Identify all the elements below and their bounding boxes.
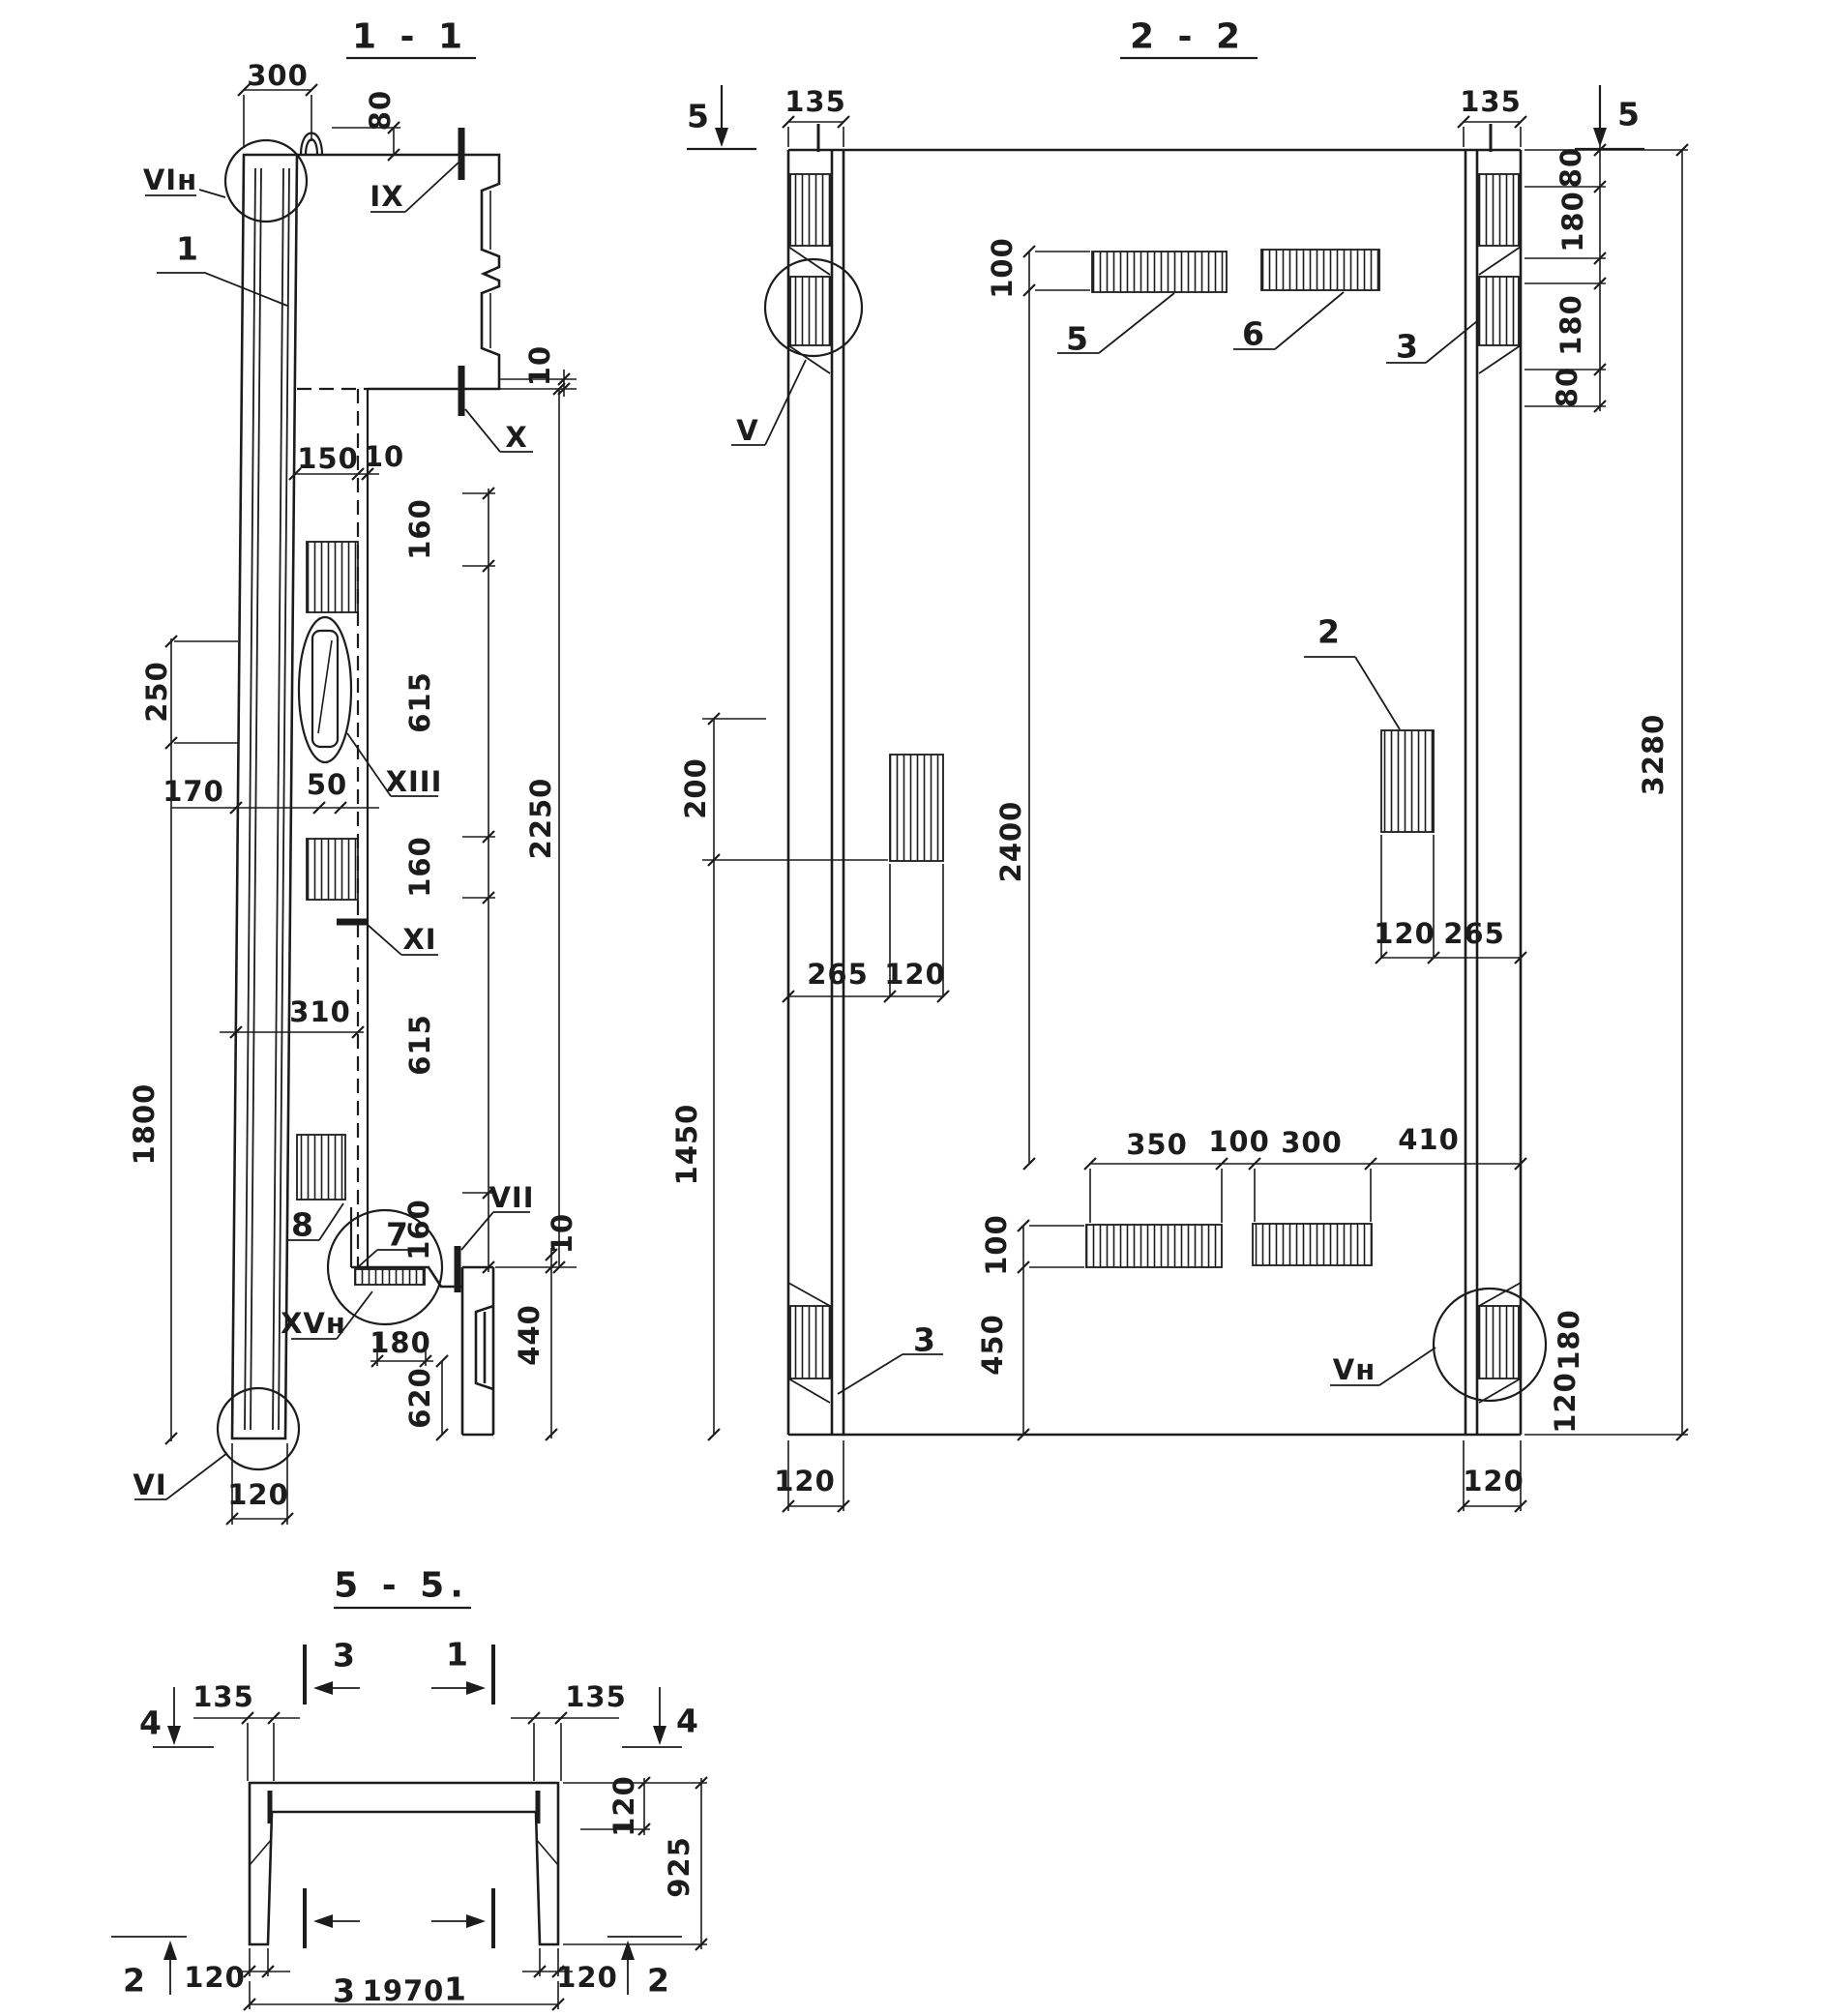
wall-reinforcement-bars xyxy=(245,168,289,1430)
s22-dim-80-a: 80 xyxy=(1554,147,1587,188)
s22-dim-80-b: 80 xyxy=(1551,367,1583,407)
s11-mark-xv-n: XVн xyxy=(281,1307,346,1340)
s11-dim-2250: 2250 xyxy=(524,778,557,860)
dimension-ticks-5-5 xyxy=(242,1712,707,2010)
plate-mid-left xyxy=(890,755,943,861)
s22-dim-350: 350 xyxy=(1126,1128,1188,1161)
s11-mark-xiii: XIII xyxy=(386,765,443,798)
s55-cut-4-right: 4 xyxy=(676,1703,699,1740)
s55-cut-3-bot: 3 xyxy=(333,1972,356,2010)
left-column-key-top-2 xyxy=(790,277,830,345)
s11-dim-10-bot: 10 xyxy=(546,1213,578,1254)
plate-top-left xyxy=(1092,252,1227,292)
s55-cut-4-left: 4 xyxy=(139,1705,163,1742)
s55-cut-1-bot: 1 xyxy=(444,1971,467,2008)
s11-dim-1800: 1800 xyxy=(128,1083,161,1166)
cut-marker-ticks xyxy=(305,1645,493,1948)
s22-dim-300: 300 xyxy=(1281,1126,1343,1159)
right-column-key-bottom xyxy=(1479,1306,1519,1379)
s11-dim-50: 50 xyxy=(307,768,347,801)
s11-dim-160-b: 160 xyxy=(403,836,436,898)
s22-dim-135-right: 135 xyxy=(1460,85,1522,118)
s11-dim-170: 170 xyxy=(163,775,224,808)
rebar-stubs xyxy=(818,124,1491,152)
rib-edge-line xyxy=(351,389,368,1267)
s22-dim-265-left: 265 xyxy=(807,958,869,991)
plate-mid-right xyxy=(1381,730,1434,832)
channel-section-outline xyxy=(250,1783,558,1944)
s22-dim-100-top: 100 xyxy=(986,237,1019,299)
s55-cut-1-top: 1 xyxy=(446,1636,469,1674)
s22-part-6: 6 xyxy=(1242,315,1265,353)
left-column-key-top-1 xyxy=(790,174,830,246)
s11-dim-10-mid: 10 xyxy=(364,440,404,473)
technical-drawing-canvas: 1 - 1 2 - 2 xyxy=(0,0,1835,2016)
s22-mark-v-n: Vн xyxy=(1333,1353,1376,1386)
s11-dim-160-a: 160 xyxy=(403,498,436,560)
s11-dim-180: 180 xyxy=(370,1326,431,1359)
s11-mark-xi: XI xyxy=(402,923,436,956)
plate-bottom-right xyxy=(1253,1224,1372,1265)
s22-cut-5-left: 5 xyxy=(687,98,710,135)
s22-mark-v: V xyxy=(736,414,758,447)
s22-dim-3280: 3280 xyxy=(1637,714,1670,796)
s11-dim-620: 620 xyxy=(403,1367,436,1429)
cut-marker-5-arrowheads xyxy=(715,128,1607,147)
s55-dim-120-bot-right: 120 xyxy=(556,1961,618,1994)
s22-dim-1450: 1450 xyxy=(670,1104,703,1186)
s22-dim-120-mid-left: 120 xyxy=(884,958,946,991)
s11-dim-300: 300 xyxy=(247,59,309,92)
s22-dim-120-bot-right: 120 xyxy=(1463,1465,1524,1497)
s22-part-3-bot: 3 xyxy=(913,1321,936,1359)
s55-cut-3-top: 3 xyxy=(333,1637,356,1675)
embedded-plate-middle xyxy=(307,839,358,900)
s55-dim-120-top: 120 xyxy=(607,1775,640,1837)
s11-dim-310: 310 xyxy=(289,995,351,1028)
s22-dim-180-c: 180 xyxy=(1553,1309,1585,1371)
s22-part-5: 5 xyxy=(1066,320,1089,358)
section-2-2: 2 - 2 xyxy=(687,17,1688,1513)
s22-part-3-top: 3 xyxy=(1396,328,1419,366)
cut-marker-arrowheads xyxy=(163,1681,666,1960)
s11-part-8: 8 xyxy=(291,1206,314,1244)
embedded-plate-bottom xyxy=(297,1135,345,1200)
plate-bottom-left xyxy=(1086,1225,1222,1267)
s22-dim-135-left: 135 xyxy=(784,85,846,118)
s11-dim-120: 120 xyxy=(227,1478,289,1511)
section-1-1: 1 - 1 xyxy=(134,17,577,1526)
s11-mark-x: X xyxy=(505,421,527,454)
left-column-key-bottom xyxy=(790,1306,830,1379)
s11-dim-440: 440 xyxy=(513,1304,546,1366)
embedded-plate-top xyxy=(307,542,358,612)
s55-dim-120-bot-left: 120 xyxy=(184,1961,246,1994)
s22-dim-180-a: 180 xyxy=(1556,191,1589,252)
s11-dim-150: 150 xyxy=(297,442,359,475)
dimension-ticks-2-2 xyxy=(708,116,1688,1512)
s11-mark-vi-n: VIн xyxy=(143,163,197,196)
weld-hatch-strip xyxy=(355,1269,425,1285)
s22-dim-180-b: 180 xyxy=(1554,294,1587,356)
s11-mark-ix: IX xyxy=(370,180,403,213)
s22-dim-120-r: 120 xyxy=(1549,1372,1582,1434)
s11-dim-80: 80 xyxy=(364,90,397,131)
section-2-2-title: 2 - 2 xyxy=(1130,17,1246,57)
s55-cut-2-left: 2 xyxy=(123,1962,146,2000)
leader-lines-1-1 xyxy=(134,163,533,1499)
section-cut-marks xyxy=(337,128,461,1292)
corner-key-marks xyxy=(270,1791,538,1823)
s11-part-1: 1 xyxy=(176,230,199,268)
s11-dim-615-a: 615 xyxy=(403,671,436,733)
s22-part-2: 2 xyxy=(1317,613,1341,651)
cut-marker-lines xyxy=(111,1687,682,1995)
s11-dim-250: 250 xyxy=(140,661,173,723)
s22-cut-5-right: 5 xyxy=(1617,96,1641,133)
s22-dim-120-bot-left: 120 xyxy=(774,1465,836,1497)
section-1-1-title: 1 - 1 xyxy=(352,17,468,57)
s11-mark-vi: VI xyxy=(133,1468,166,1501)
plate-top-right xyxy=(1261,250,1379,290)
s22-dim-120-mid-right: 120 xyxy=(1374,917,1435,950)
s22-dim-100-bot-v: 100 xyxy=(980,1214,1013,1276)
s11-part-7: 7 xyxy=(386,1216,409,1254)
s55-dim-1970: 1970 xyxy=(363,1974,445,2007)
s22-dim-450: 450 xyxy=(976,1314,1009,1376)
s55-dim-135-right: 135 xyxy=(565,1680,627,1713)
s22-dim-265-right: 265 xyxy=(1443,917,1505,950)
drawing-sheet: 1 - 1 2 - 2 xyxy=(0,0,1835,2016)
dimension-lines-2-2 xyxy=(702,122,1688,1511)
s22-dim-2400: 2400 xyxy=(994,801,1027,883)
section-5-5-title: 5 - 5. xyxy=(334,1566,469,1606)
s11-mark-vii: VII xyxy=(488,1181,534,1214)
s22-dim-410: 410 xyxy=(1398,1123,1460,1156)
s11-dim-10-top: 10 xyxy=(523,345,556,386)
leg-chamfer-lines xyxy=(250,1839,558,1865)
s55-dim-925: 925 xyxy=(663,1836,696,1898)
right-column-key-top-2 xyxy=(1479,277,1519,345)
s22-dim-100-bot-h: 100 xyxy=(1208,1125,1270,1158)
slot-inner-diagonal xyxy=(318,640,332,733)
detail-circle-vi-n xyxy=(225,140,307,222)
s11-dim-615-b: 615 xyxy=(403,1014,436,1076)
s55-cut-2-right: 2 xyxy=(647,1962,670,2000)
s55-dim-135-left: 135 xyxy=(192,1680,254,1713)
right-column-key-top-1 xyxy=(1479,174,1519,246)
s22-dim-200: 200 xyxy=(679,757,712,819)
